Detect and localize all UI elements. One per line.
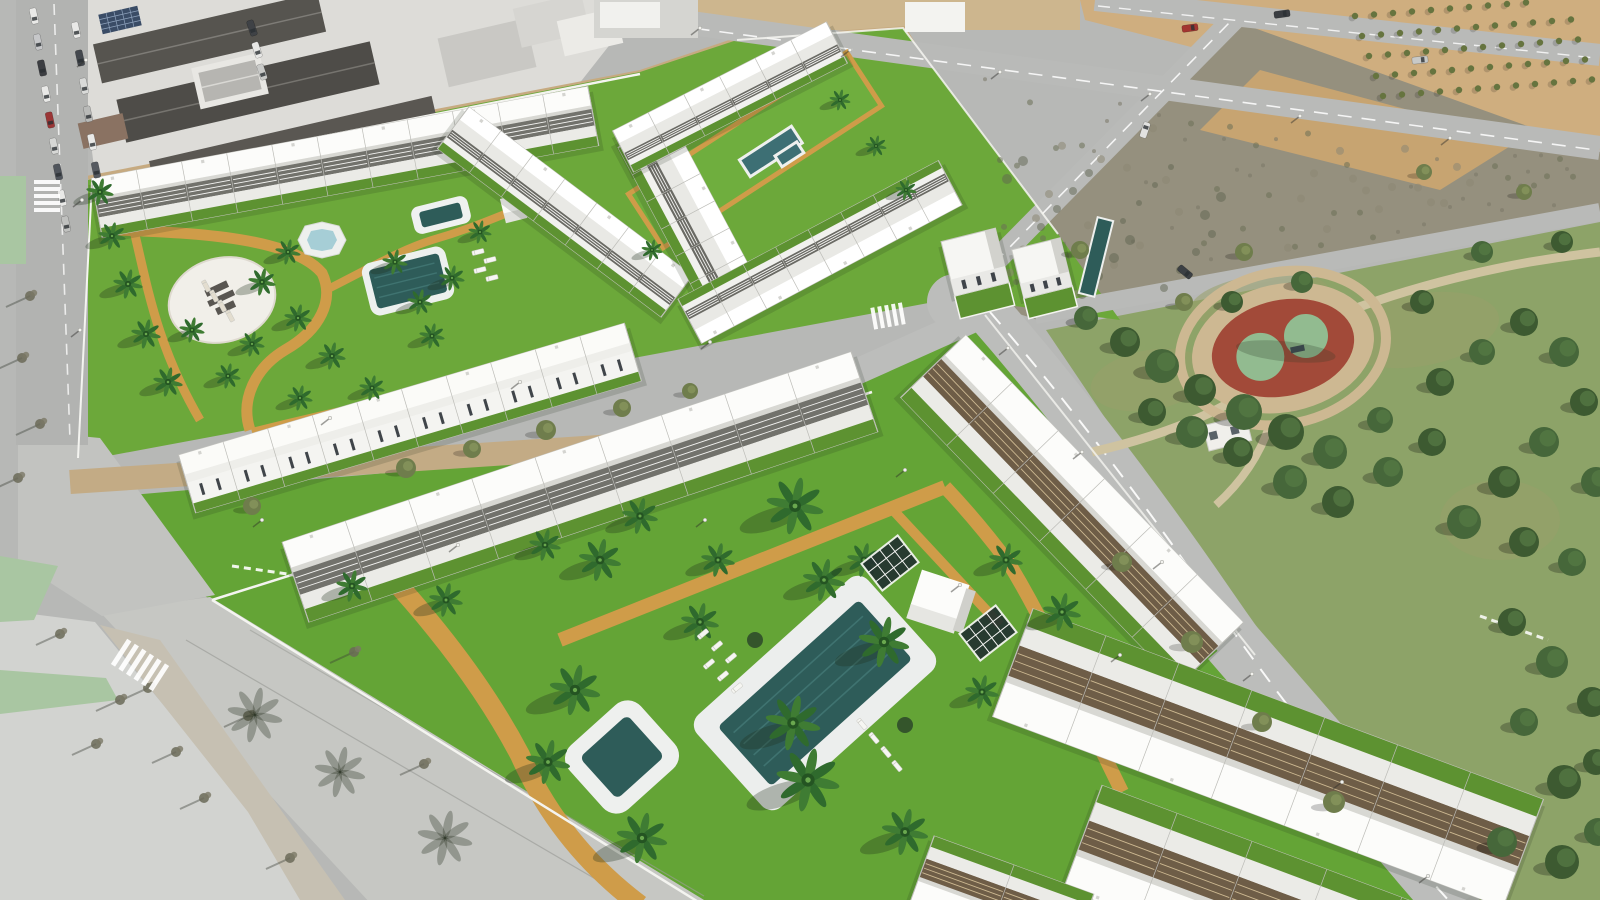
orchard-tree xyxy=(1442,47,1448,53)
palm-crown-center xyxy=(351,585,354,588)
street-tree xyxy=(469,443,478,452)
scrub-speckle xyxy=(1570,174,1576,180)
white-building-top xyxy=(905,2,965,32)
scrub-speckle xyxy=(1240,226,1246,232)
street-lamp xyxy=(703,518,707,522)
orchard-tree xyxy=(1449,67,1455,73)
street-tree xyxy=(688,385,696,393)
street-lamp xyxy=(1250,672,1254,676)
scrub-speckle xyxy=(1157,113,1161,117)
palm-crown-center xyxy=(839,99,841,101)
palm-crown-center xyxy=(127,283,130,286)
park-tree xyxy=(1229,293,1241,305)
bare-tree xyxy=(61,628,67,634)
scrub-speckle xyxy=(1032,214,1040,222)
park-tree xyxy=(1478,342,1492,356)
bare-tree xyxy=(291,852,297,858)
orchard-tree xyxy=(1435,27,1441,33)
orchard-tree xyxy=(1390,10,1396,16)
scrub-speckle xyxy=(1188,120,1194,126)
street-lamp xyxy=(1080,450,1084,454)
scrub-speckle xyxy=(1531,182,1537,188)
chimney xyxy=(201,160,205,164)
orchard-tree xyxy=(1492,22,1498,28)
orchard-tree xyxy=(1397,30,1403,36)
palm-crown-center xyxy=(791,721,796,726)
palm-crown-center xyxy=(544,544,547,547)
street-lamp xyxy=(1160,560,1164,564)
scrub-bush xyxy=(1125,235,1135,245)
palm-crown-center xyxy=(598,558,602,562)
scrub-speckle xyxy=(1001,224,1007,230)
street-tree xyxy=(1422,166,1430,174)
aerial-development-render xyxy=(0,0,1600,900)
orchard-tree xyxy=(1556,38,1562,44)
street-lamp xyxy=(1148,92,1152,96)
scrub-bush xyxy=(1120,218,1126,224)
orchard-tree xyxy=(1378,31,1384,37)
bare-tree xyxy=(97,738,103,744)
scrub-bush xyxy=(1160,284,1168,292)
orchard-tree xyxy=(1473,24,1479,30)
scrub-speckle xyxy=(1453,163,1461,171)
scrub-speckle xyxy=(1388,183,1396,191)
scrub-speckle xyxy=(1440,199,1448,207)
park-tree xyxy=(1499,469,1517,487)
orchard-tree xyxy=(1428,7,1434,13)
scrub-speckle xyxy=(1297,195,1305,203)
orchard-tree xyxy=(1454,25,1460,31)
orchard-tree xyxy=(1480,44,1486,50)
scrub-speckle xyxy=(1201,240,1207,246)
palm-crown-center xyxy=(394,261,396,263)
palm-crown-center xyxy=(651,249,653,251)
palm-crown-center xyxy=(111,235,113,237)
park-tree xyxy=(1195,377,1213,395)
street-tree xyxy=(543,423,553,433)
orchard-tree xyxy=(1563,58,1569,64)
scrub-speckle xyxy=(1175,208,1183,216)
scrub-speckle xyxy=(1222,137,1226,141)
park-tree xyxy=(1082,308,1095,321)
scrub-speckle xyxy=(1539,153,1543,157)
scrub-bush xyxy=(1136,200,1142,206)
orchard-tree xyxy=(1392,71,1398,77)
street-lamp xyxy=(998,70,1002,74)
scrub-bush xyxy=(1152,182,1158,188)
palm-crown-center xyxy=(875,145,877,147)
orchard-tree xyxy=(1549,18,1555,24)
scrub-speckle xyxy=(1027,99,1033,105)
scrub-speckle xyxy=(1214,186,1220,192)
scrub-speckle xyxy=(1414,184,1422,192)
scrub-bush xyxy=(1208,230,1216,238)
palm-crown-center xyxy=(822,578,826,582)
palm-crown-center xyxy=(640,836,644,840)
orchard-tree xyxy=(1575,36,1581,42)
park-tree xyxy=(1479,243,1491,255)
orchard-tree xyxy=(1461,45,1467,51)
orchard-tree xyxy=(1371,11,1377,17)
orchard-tree xyxy=(1409,8,1415,14)
scrub-speckle xyxy=(983,77,987,81)
bare-tree xyxy=(205,792,211,798)
street-lamp xyxy=(708,340,712,344)
palm-crown-center xyxy=(419,301,421,303)
park-tree xyxy=(1157,352,1176,371)
palm-crown-center xyxy=(299,397,301,399)
scrub-speckle xyxy=(1526,170,1530,174)
orchard-tree xyxy=(1506,62,1512,68)
bare-tree xyxy=(41,418,47,424)
scrub-bush xyxy=(1168,164,1174,170)
scrub-speckle xyxy=(1487,202,1491,206)
car-windshield xyxy=(1283,11,1287,17)
bare-tree xyxy=(23,352,29,358)
park-tree xyxy=(1520,530,1537,547)
street-lamp xyxy=(1448,136,1452,140)
scrub-speckle xyxy=(1513,154,1517,158)
orchard-tree xyxy=(1537,39,1543,45)
park-tree xyxy=(1418,292,1431,305)
scrub-speckle xyxy=(1097,155,1105,163)
orchard-tree xyxy=(1570,78,1576,84)
scrub-speckle xyxy=(1557,156,1563,162)
palm-crown-center xyxy=(261,281,263,283)
park-tree xyxy=(1325,438,1344,457)
palm-crown-center xyxy=(546,760,550,764)
scrub-speckle xyxy=(1162,176,1170,184)
car-body xyxy=(1412,56,1429,65)
palm-crown-center xyxy=(805,777,810,782)
palm-crown-center xyxy=(167,381,170,384)
street-lamp xyxy=(456,543,460,547)
street-lamp xyxy=(1426,874,1430,878)
park-tree xyxy=(1559,233,1571,245)
scrub-speckle xyxy=(1196,205,1200,209)
palm-crown-center xyxy=(793,504,798,509)
orchard-tree xyxy=(1532,81,1538,87)
orchard-tree xyxy=(1494,84,1500,90)
bare-tree xyxy=(121,694,127,700)
orchard-tree xyxy=(1568,16,1574,22)
chimney xyxy=(291,143,295,147)
orchard-tree xyxy=(1487,64,1493,70)
street-lamp xyxy=(1118,653,1122,657)
orchard-tree xyxy=(1418,90,1424,96)
aerial-render-stage xyxy=(0,0,1600,900)
street-lamp xyxy=(328,416,332,420)
scrub-speckle xyxy=(1331,210,1337,216)
park-tree xyxy=(1547,649,1565,667)
park-tree xyxy=(1281,418,1301,438)
palm-crown-center xyxy=(331,355,333,357)
orchard-tree xyxy=(1352,13,1358,19)
scrub-speckle xyxy=(1235,168,1239,172)
scrub-speckle xyxy=(1144,180,1148,184)
scrub-speckle xyxy=(1305,130,1311,136)
scrub-bush xyxy=(1018,156,1028,166)
chimney xyxy=(381,126,385,130)
park-tree xyxy=(1121,330,1138,347)
park-tree xyxy=(1428,431,1443,446)
scrub-speckle xyxy=(1565,167,1569,171)
orchard-tree xyxy=(1385,51,1391,57)
street-tree xyxy=(1189,634,1200,645)
orchard-tree xyxy=(1423,48,1429,54)
scrub-speckle xyxy=(1401,145,1409,153)
scrub-speckle xyxy=(1084,221,1092,229)
orchard-tree xyxy=(1366,53,1372,59)
orchard-tree xyxy=(1513,82,1519,88)
street-tree xyxy=(1119,555,1129,565)
orchard-tree xyxy=(1475,85,1481,91)
scrub-speckle xyxy=(1466,179,1474,187)
scrub-speckle xyxy=(1170,226,1174,230)
scrub-bush xyxy=(1216,192,1226,202)
scrub-speckle xyxy=(1227,124,1233,130)
car xyxy=(1412,56,1429,65)
car-windshield xyxy=(1191,25,1195,31)
orchard-tree xyxy=(1437,88,1443,94)
palm-crown-center xyxy=(903,830,907,834)
crosswalk-stripe xyxy=(34,201,60,205)
scrub-speckle xyxy=(1544,173,1550,179)
fountain-water xyxy=(307,229,337,251)
scrub-bush xyxy=(1200,210,1210,220)
orchard-tree xyxy=(1359,33,1365,39)
park-tree xyxy=(1520,711,1535,726)
palm-crown-center xyxy=(573,688,577,692)
palm-crown-center xyxy=(227,375,229,377)
scrub-speckle xyxy=(1362,186,1370,194)
scrub-speckle xyxy=(1349,175,1357,183)
street-tree xyxy=(1241,246,1250,255)
scrub-speckle xyxy=(1092,149,1096,153)
scrub-speckle xyxy=(1427,198,1435,206)
park-tree xyxy=(1560,340,1577,357)
orchard-tree xyxy=(1582,56,1588,62)
park-tree xyxy=(1436,371,1451,386)
scrub-speckle xyxy=(1552,203,1556,207)
street-tree xyxy=(1259,715,1269,725)
park-tree xyxy=(1299,273,1311,285)
park-tree xyxy=(1520,311,1535,326)
street-lamp xyxy=(1006,346,1010,350)
scrub-speckle xyxy=(1266,192,1272,198)
scrub-speckle xyxy=(1183,138,1187,142)
bare-tree xyxy=(177,746,183,752)
park-tree xyxy=(1540,430,1557,447)
palm-crown-center xyxy=(479,231,481,233)
park-tree xyxy=(1498,830,1515,847)
scrub-speckle xyxy=(1505,175,1511,181)
street-lamp xyxy=(518,380,522,384)
palm-crown-center xyxy=(371,387,373,389)
scrub-speckle xyxy=(1279,226,1285,232)
crosswalk-stripe xyxy=(34,187,60,191)
park-tree xyxy=(1508,611,1523,626)
scrub-speckle xyxy=(1435,157,1439,161)
chimney xyxy=(562,93,566,97)
orchard-tree xyxy=(1504,1,1510,7)
orchard-tree xyxy=(1499,42,1505,48)
scrub-speckle xyxy=(1261,163,1265,167)
scrub-speckle xyxy=(1118,102,1122,106)
chimney xyxy=(111,176,115,180)
scrub-speckle xyxy=(1396,230,1400,234)
park-tree xyxy=(1239,398,1259,418)
palm-crown-center xyxy=(297,317,299,319)
palm-crown-center xyxy=(451,277,453,279)
palm-crown-center xyxy=(882,640,886,644)
scrub-speckle xyxy=(1357,210,1363,216)
palm-crown-center xyxy=(445,599,448,602)
park-tree xyxy=(1557,848,1576,867)
orchard-tree xyxy=(1447,5,1453,11)
street-tree xyxy=(1077,244,1086,253)
orchard-tree xyxy=(1404,50,1410,56)
bare-tree xyxy=(31,290,37,296)
scrub-speckle xyxy=(1448,205,1452,209)
orchard-tree xyxy=(1430,68,1436,74)
scrub-speckle xyxy=(1284,244,1292,252)
palm-crown-center xyxy=(698,620,701,623)
street-lamp xyxy=(958,583,962,587)
scrub-speckle xyxy=(1310,169,1318,177)
orchard-tree xyxy=(1411,70,1417,76)
scrub-speckle xyxy=(1058,142,1066,150)
orchard-tree xyxy=(1530,19,1536,25)
palm-crown-center xyxy=(905,189,907,191)
scrub-speckle xyxy=(1500,208,1504,212)
park-tree xyxy=(1148,401,1163,416)
palm-crown-center xyxy=(145,333,148,336)
park-tree xyxy=(1384,460,1401,477)
scrub-speckle xyxy=(1474,173,1478,177)
street-lamp xyxy=(1340,780,1344,784)
street-lamp xyxy=(903,468,907,472)
bare-tree xyxy=(355,646,361,652)
street-lamp xyxy=(848,48,852,52)
street-tree xyxy=(1331,794,1342,805)
scrub-bush xyxy=(997,157,1003,163)
orchard-tree xyxy=(1518,41,1524,47)
scrub-speckle xyxy=(1370,234,1376,240)
orchard-tree xyxy=(1373,73,1379,79)
street-lamp xyxy=(1298,114,1302,118)
palm-crown-center xyxy=(1005,559,1008,562)
street-tree xyxy=(1181,296,1190,305)
orchard-tree xyxy=(1551,79,1557,85)
park-tree xyxy=(1187,419,1205,437)
park-tree xyxy=(1333,489,1351,507)
orchard-tree xyxy=(1380,93,1386,99)
palm-crown-center xyxy=(99,191,101,193)
bare-tree xyxy=(19,472,25,478)
park-tree xyxy=(1459,508,1478,527)
crosswalk-stripe xyxy=(34,180,60,184)
scrub-speckle xyxy=(1105,119,1109,123)
crosswalk-stripe xyxy=(34,194,60,198)
crosswalk-stripe xyxy=(34,208,60,212)
street-tree xyxy=(403,461,413,471)
scrub-speckle xyxy=(1136,241,1144,249)
orchard-tree xyxy=(1466,4,1472,10)
street-lamp xyxy=(84,58,88,62)
orchard-tree xyxy=(1511,21,1517,27)
scrub-speckle xyxy=(1344,162,1350,168)
park-tree xyxy=(1559,768,1578,787)
street-lamp xyxy=(78,328,82,332)
palm-crown-center xyxy=(287,251,289,253)
orchard-tree xyxy=(1399,91,1405,97)
street-lamp xyxy=(80,198,84,202)
scrub-speckle xyxy=(1461,197,1465,201)
scrub-speckle xyxy=(1253,142,1259,148)
scrub-speckle xyxy=(1323,225,1331,233)
scrub-speckle xyxy=(1040,235,1046,241)
palm-crown-center xyxy=(191,329,193,331)
scrub-bush xyxy=(1085,169,1093,177)
street-tree xyxy=(249,500,258,509)
palm-crown-center xyxy=(717,559,720,562)
street-lamp xyxy=(698,26,702,30)
scrub-speckle xyxy=(1409,185,1413,189)
scrub-speckle xyxy=(1492,163,1498,169)
scrub-speckle xyxy=(1209,257,1213,261)
palm-crown-center xyxy=(1060,610,1063,613)
orchard-tree xyxy=(1456,87,1462,93)
scrub-speckle xyxy=(1248,174,1252,178)
scrub-bush xyxy=(1069,187,1077,195)
orchard-tree xyxy=(1485,2,1491,8)
street-tree xyxy=(619,402,628,411)
park-tree xyxy=(1568,551,1583,566)
palm-crown-center xyxy=(981,691,984,694)
scrub-bush xyxy=(1109,253,1119,263)
car-windshield xyxy=(1421,57,1425,63)
orchard-tree xyxy=(1468,65,1474,71)
park-tree xyxy=(1234,440,1251,457)
orchard-tree xyxy=(1589,76,1595,82)
orchard-tree xyxy=(1544,59,1550,65)
park-tree xyxy=(1285,468,1304,487)
palm-crown-center xyxy=(251,343,253,345)
scrub-speckle xyxy=(1422,222,1426,226)
bare-tree xyxy=(425,758,431,764)
scrub-bush xyxy=(1002,174,1012,184)
palm-crown-center xyxy=(431,335,433,337)
scrub-bush xyxy=(1192,248,1200,256)
scrub-speckle xyxy=(1292,244,1298,250)
scrub-speckle xyxy=(1123,164,1131,172)
park-tree xyxy=(1580,391,1595,406)
park-tree xyxy=(1376,410,1390,424)
orchard-tree xyxy=(1525,61,1531,67)
scrub-speckle xyxy=(1375,205,1383,213)
scrub-speckle xyxy=(1079,143,1085,149)
street-lamp xyxy=(260,518,264,522)
street-tree xyxy=(1522,186,1530,194)
scrub-bush xyxy=(1053,205,1061,213)
scrub-speckle xyxy=(1318,242,1324,248)
scrub-bush xyxy=(1037,223,1045,231)
scrub-speckle xyxy=(1274,137,1278,141)
scrub-speckle xyxy=(1045,190,1053,198)
scrub-speckle xyxy=(1336,147,1344,155)
palm-crown-center xyxy=(638,514,641,517)
